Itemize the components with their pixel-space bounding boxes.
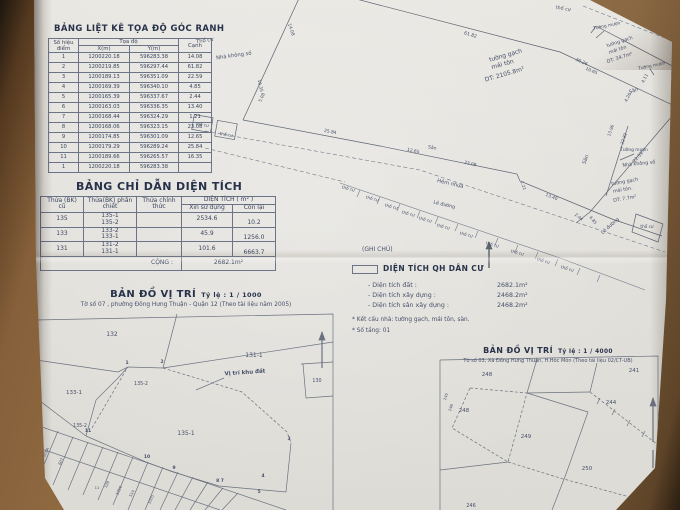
coord-table-row: 81200168.06596323.1523.08: [49, 123, 212, 133]
drawing-label: thổ cư: [436, 223, 450, 231]
coord-cell: 1200189.66: [79, 153, 130, 163]
drawing-label: 250: [582, 466, 593, 472]
area-cell-remain: 10.2: [233, 212, 276, 227]
area-cell-old: 135: [41, 212, 84, 227]
area-cell-official: [137, 212, 182, 227]
drawing-label: 10: [144, 454, 150, 460]
coord-cell: 596323.15: [130, 123, 179, 133]
coord-cell: 596283.38: [130, 163, 179, 173]
area-col-remain: Còn lại: [233, 204, 276, 212]
drawing-label: 10.65: [584, 66, 598, 77]
area-table-body: 135135-1 135-22534.610.2133133-2 133-145…: [41, 212, 276, 256]
area-col-old: Thửa (BK) cũ: [41, 197, 84, 213]
coord-cell: 1200189.13: [79, 73, 130, 83]
coord-table-row: 51200165.39596337.672.44: [49, 93, 212, 103]
coord-table-row: 91200174.85596301.0912.65: [49, 133, 212, 143]
drawing-label: thổ cư: [341, 185, 355, 193]
area-col-official: Thửa chính thức: [137, 197, 182, 213]
coord-cell: 1: [49, 53, 79, 63]
drawing-label: 128: [103, 479, 111, 488]
legend-item-value: 2682.1m²: [497, 282, 528, 289]
map2-scale: Tỷ lệ : 1 / 4000: [558, 349, 613, 355]
drawing-label: Sân: [427, 143, 437, 152]
legend-floors-note: * Số tầng: 01: [352, 328, 390, 334]
coord-cell: 23.08: [179, 123, 212, 133]
map1-header: BẢN ĐỒ VỊ TRÍ Tỷ lệ : 1 / 1000 Tờ số 07 …: [36, 282, 336, 308]
drawing-label: 11: [85, 428, 91, 434]
area-total-label: CỘNG :: [41, 257, 182, 271]
coord-cell: 1200174.85: [79, 133, 130, 143]
area-table-title: BẢNG CHỈ DẪN DIỆN TÍCH: [76, 180, 242, 193]
coord-cell: 1200219.85: [79, 63, 130, 73]
coord-cell: 25.84: [179, 143, 212, 153]
coord-cell: 6: [49, 103, 79, 113]
coord-cell: 596340.10: [130, 83, 179, 93]
coord-cell: 2.44: [179, 93, 212, 103]
coord-cell: 9: [49, 133, 79, 143]
map2-title: BẢN ĐỒ VỊ TRÍ: [483, 346, 553, 355]
coord-cell: 4: [49, 83, 79, 93]
drawing-label: 135-2: [134, 381, 148, 387]
drawing-label: 13.96: [606, 124, 615, 137]
coord-table-row: 41200169.39596340.104.85: [49, 83, 212, 93]
area-cell-use: 2534.6: [182, 212, 233, 227]
legend-title: DIỆN TÍCH QH DÂN CƯ: [383, 264, 484, 273]
coord-cell: 2: [49, 63, 79, 73]
coord-cell: 12.65: [179, 133, 212, 143]
scanned-paper: Thổ cưNhà không sốthổ cưtường gạchmái tô…: [0, 0, 680, 510]
legend-note-label: (GHI CHÚ): [362, 246, 393, 253]
coord-cell: 1: [49, 163, 79, 173]
coord-table-title: BẢNG LIỆT KÊ TỌA ĐỘ GÓC RANH: [54, 24, 224, 34]
drawing-label: 4.11: [640, 73, 650, 85]
coord-cell: 596301.09: [130, 133, 179, 143]
legend-item-value: 2468.2m²: [497, 292, 528, 299]
drawing-label: 4: [261, 473, 264, 479]
drawing-label: tường gạch: [611, 176, 639, 188]
drawing-label: 1.21: [519, 180, 527, 191]
drawing-label: 3: [287, 436, 290, 442]
coord-table-row: 11200220.18596283.38: [49, 163, 212, 173]
drawing-label: 22.82: [619, 132, 628, 145]
coord-table-row: 11200220.18596283.3814.08: [49, 53, 212, 63]
drawing-label: thổ cư: [510, 249, 524, 257]
drawing-label: 14.08: [286, 23, 296, 37]
drawing-label: 12.65: [406, 147, 420, 156]
coord-cell: 596297.44: [130, 63, 179, 73]
drawing-label: thổ cư: [560, 264, 574, 273]
coord-cell: 10: [49, 143, 79, 153]
drawing-label: thổ cư: [401, 210, 415, 218]
area-cell-split: 131-2 131-1: [84, 242, 137, 257]
drawing-label: 249: [521, 434, 532, 440]
drawing-label: thổ cư: [384, 203, 398, 211]
coord-table-row: 21200219.85596297.4461.82: [49, 63, 212, 73]
legend-structure-note: * Kết cấu nhà: tường gạch, mái tôn, sàn.: [352, 317, 470, 323]
map2-subtitle: Tờ số 03, Xã Đông Hưng Thuận, H.Hóc Môn …: [432, 358, 664, 364]
drawing-label: 130: [312, 378, 321, 384]
coord-cell: 11: [49, 153, 79, 163]
drawing-label: thổ cư: [418, 216, 432, 224]
drawing-label: 9: [172, 465, 175, 471]
drawing-label: 2: [160, 359, 163, 365]
drawing-label: thổ cư: [459, 231, 473, 239]
drawing-label: Vị trí khu đất: [224, 368, 266, 378]
coord-table-body: 11200220.18596283.3814.0821200219.855962…: [49, 53, 212, 173]
map1-title: BẢN ĐỒ VỊ TRÍ: [110, 289, 196, 300]
drawing-label: 132: [106, 331, 118, 338]
area-col-use: Xin sử dụng: [182, 204, 233, 212]
coord-cell: 596337.67: [130, 93, 179, 103]
photo-of-cadastral-document: { "coord_table": { "title": "BẢNG LIỆT K…: [0, 0, 680, 510]
area-table: Thửa (BK) cũ Thửa(BK) phân chiết Thửa ch…: [40, 196, 276, 271]
coord-cell: 1200179.29: [79, 143, 130, 153]
coord-cell: 596336.35: [130, 103, 179, 113]
coord-cell: 3: [49, 73, 79, 83]
coord-table-row: 31200189.13596351.0922.59: [49, 73, 212, 83]
drawing-label: 246: [466, 503, 476, 509]
drawing-label: 4.85: [588, 215, 598, 226]
drawing-label: 607: [57, 456, 65, 465]
drawing-label: thổ cư: [555, 4, 572, 14]
drawing-label: DT: 7.7m²: [613, 194, 637, 204]
coord-cell: [179, 163, 212, 173]
coord-cell: 1200169.39: [79, 83, 130, 93]
drawing-label: Tường mượn: [591, 19, 621, 32]
coord-cell: 596265.57: [130, 153, 179, 163]
coord-cell: 596351.09: [130, 73, 179, 83]
drawing-label: 246: [447, 403, 454, 412]
drawing-label: 1005: [146, 493, 155, 504]
coord-cell: 7: [49, 113, 79, 123]
map1-scale: Tỷ lệ : 1 / 1000: [201, 291, 262, 299]
coord-col-x: X(m): [79, 46, 130, 53]
area-cell-official: [137, 242, 182, 257]
area-cell-official: [137, 227, 182, 242]
drawing-label: 514: [128, 488, 136, 497]
drawing-label: 5: [257, 489, 260, 495]
coord-col-coords: Tọa độ: [79, 39, 179, 46]
map2-header: BẢN ĐỒ VỊ TRÍ Tỷ lệ : 1 / 4000 Tờ số 03,…: [432, 338, 664, 364]
coord-table-row: 111200189.66596265.5716.35: [49, 153, 212, 163]
area-cell-old: 131: [41, 242, 84, 257]
coord-col-edge: Cạnh: [179, 39, 212, 53]
legend-item-label: - Diện tích sân xây dựng :: [368, 302, 449, 309]
legend-item-label: - Diện tích đất :: [368, 282, 417, 289]
drawing-label: 133-1: [66, 390, 82, 396]
location-map-4000: [440, 356, 658, 510]
coord-cell: 1200163.03: [79, 103, 130, 113]
drawing-label: 13.40: [544, 192, 558, 202]
coord-table: Số hiệu điểm Tọa độ Cạnh X(m) Y(m) 11200…: [48, 38, 212, 173]
coord-cell: 1.21: [179, 113, 212, 123]
area-table-row: 133133-2 133-145.91256.0: [41, 227, 276, 242]
drawing-label: 16.35: [256, 79, 265, 93]
coord-cell: 14.08: [179, 53, 212, 63]
area-cell-old: 133: [41, 227, 84, 242]
drawing-label: 135-1: [177, 430, 195, 437]
drawing-label: Hẻm nhựa: [436, 177, 464, 190]
drawing-label: 131-1: [245, 352, 263, 359]
drawing-label: Sân: [581, 154, 591, 165]
coord-cell: 1200165.39: [79, 93, 130, 103]
area-cell-use: 45.9: [182, 227, 233, 242]
drawing-label: 5.08: [257, 92, 266, 103]
map1-subtitle: Tờ số 07 , phường Đông Hưng Thuận - Quận…: [36, 302, 336, 308]
drawing-label: 23.08: [463, 160, 477, 169]
coord-cell: 1200220.18: [79, 163, 130, 173]
drawing-label: 248: [459, 408, 470, 414]
drawing-label: Lề đường: [433, 198, 456, 211]
area-cell-remain: 6663.7: [233, 242, 276, 257]
location-map-1000: [36, 314, 333, 510]
legend-item-label: - Diện tích xây dựng :: [368, 292, 436, 299]
coord-cell: 596283.38: [130, 53, 179, 63]
legend-swatch: [352, 265, 378, 274]
coord-table-row: 71200168.44596324.291.21: [49, 113, 212, 123]
area-cell-use: 101.6: [182, 242, 233, 257]
coord-cell: 4.85: [179, 83, 212, 93]
coord-cell: 5: [49, 93, 79, 103]
coord-cell: 16.35: [179, 153, 212, 163]
drawing-label: 1: [125, 360, 128, 366]
drawing-label: thổ cư: [640, 224, 653, 229]
drawing-label: 61.82: [463, 30, 477, 40]
area-total-value: 2682.1m²: [182, 257, 276, 271]
coord-cell: 1200168.06: [79, 123, 130, 133]
drawing-label: 245: [442, 392, 449, 401]
area-col-split: Thửa(BK) phân chiết: [84, 197, 137, 213]
drawing-label: 25.84: [323, 128, 337, 136]
coord-cell: 61.82: [179, 63, 212, 73]
drawing-label: 8 7: [216, 478, 224, 484]
legend-item-value: 2468.2m²: [497, 302, 528, 309]
coord-cell: 1200220.18: [79, 53, 130, 63]
area-cell-split: 133-2 133-1: [84, 227, 137, 242]
coord-table-row: 61200163.03596336.3513.40: [49, 103, 212, 113]
area-table-row: 131131-2 131-1101.66663.7: [41, 242, 276, 257]
drawing-label: 11: [95, 485, 100, 490]
drawing-label: Tường mượn: [636, 59, 666, 72]
drawing-label: DT: 2105.8m²: [484, 65, 526, 83]
coord-col-y: Y(m): [130, 46, 179, 53]
drawing-label: 1056: [114, 484, 123, 495]
drawing-label: Nhà không số: [216, 49, 253, 61]
coord-cell: 8: [49, 123, 79, 133]
coord-cell: 596324.29: [130, 113, 179, 123]
drawing-label: 244: [606, 400, 617, 406]
area-cell-split: 135-1 135-2: [84, 212, 137, 227]
drawing-label: 241: [629, 368, 640, 374]
area-table-row: 135135-1 135-22534.610.2: [41, 212, 276, 227]
coord-cell: 22.59: [179, 73, 212, 83]
coord-col-point: Số hiệu điểm: [49, 39, 79, 53]
drawing-label: 248: [482, 372, 493, 378]
area-cell-remain: 1256.0: [233, 227, 276, 242]
drawing-label: thổ cư: [536, 256, 550, 265]
coord-cell: 596289.24: [130, 143, 179, 153]
drawing-label: 251: [636, 500, 646, 506]
coord-table-row: 101200179.29596289.2425.84: [49, 143, 212, 153]
drawing-label: Tường mượn: [619, 146, 648, 153]
coord-cell: 1200168.44: [79, 113, 130, 123]
coord-cell: 13.40: [179, 103, 212, 113]
